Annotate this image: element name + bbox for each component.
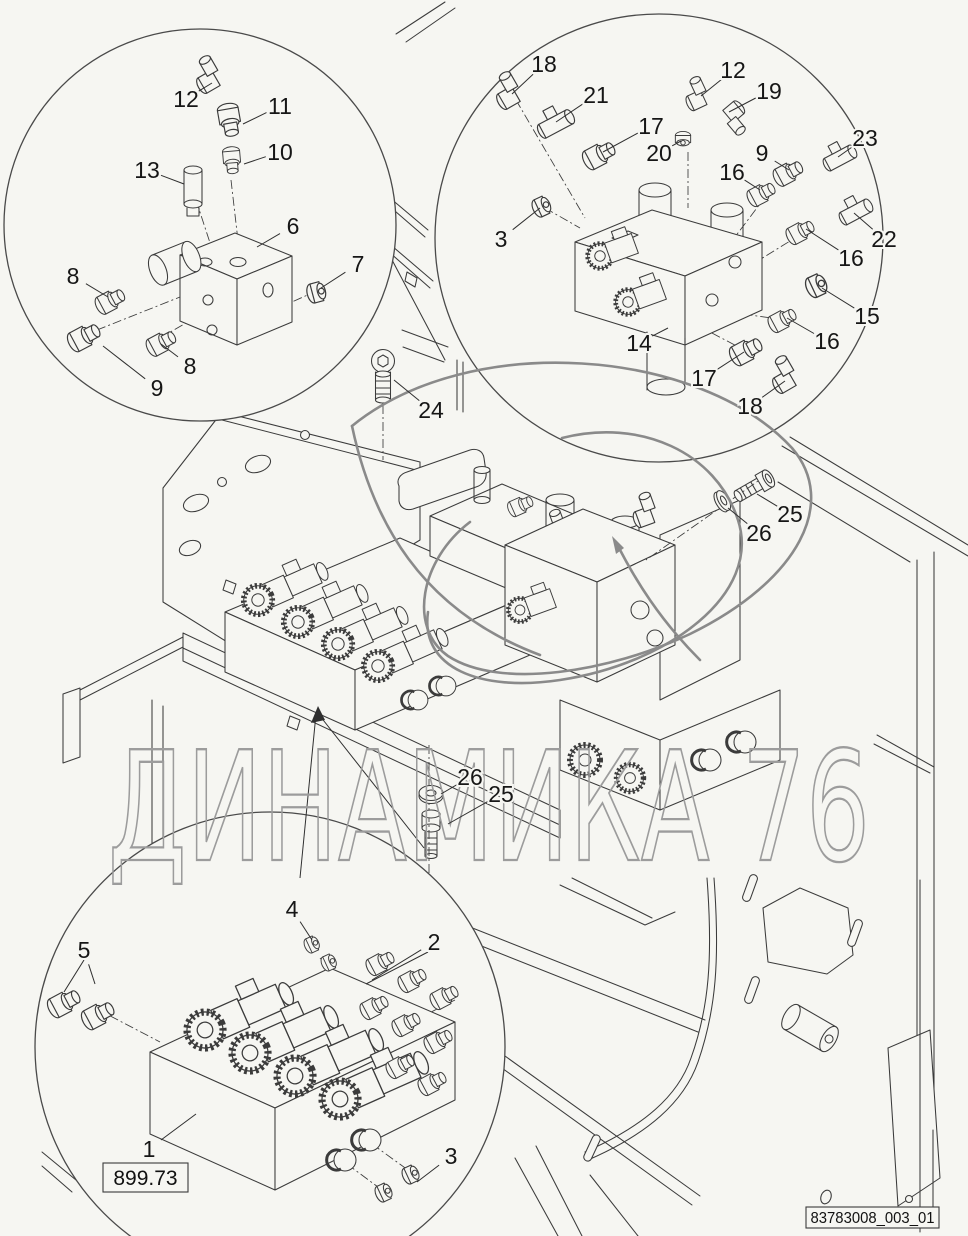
callout-17-11: 17	[638, 113, 664, 139]
reference-box: 899.73	[103, 1163, 188, 1192]
callout-11-1: 11	[268, 93, 292, 119]
callout-16-22: 16	[814, 328, 840, 354]
callout-26-28: 26	[746, 520, 772, 546]
callout-6-4: 6	[287, 213, 300, 239]
callout-1-34: 1	[143, 1136, 156, 1162]
callout-12-0: 12	[173, 86, 199, 112]
callout-10-2: 10	[267, 139, 293, 165]
callout-25-27: 25	[777, 501, 803, 527]
parts-diagram: ДИНАМИКА 76 1211101367889182117121920923…	[0, 0, 968, 1236]
bolt-24	[372, 350, 395, 404]
watermark-text: ДИНАМИКА 76	[108, 719, 870, 896]
document-id: 83783008_003_01	[811, 1210, 935, 1227]
callout-17-24: 17	[691, 365, 717, 391]
reference-number: 899.73	[113, 1167, 177, 1190]
callout-13-3: 13	[134, 157, 160, 183]
callout-9-15: 9	[756, 140, 769, 166]
callout-26-29: 26	[457, 764, 483, 790]
callout-20-14: 20	[646, 140, 672, 166]
callout-8-6: 8	[67, 263, 80, 289]
callout-22-18: 22	[871, 226, 897, 252]
detail-circle-top-left	[4, 29, 396, 421]
callout-16-20: 16	[838, 245, 864, 271]
callout-9-8: 9	[151, 375, 164, 401]
callout-leader-25-27	[757, 494, 777, 506]
callout-15-21: 15	[854, 303, 880, 329]
callout-3-19: 3	[495, 226, 508, 252]
callout-7-5: 7	[352, 251, 365, 277]
callout-19-13: 19	[756, 78, 782, 104]
callout-16-17: 16	[719, 159, 745, 185]
frame-roller	[778, 1001, 842, 1054]
bolt-25	[731, 468, 777, 506]
callout-5-31: 5	[78, 937, 91, 963]
callout-25-30: 25	[488, 781, 514, 807]
callout-14-23: 14	[626, 330, 652, 356]
callout-23-16: 23	[852, 125, 878, 151]
document-id-box: 83783008_003_01	[806, 1207, 939, 1228]
exploded-parts-diagram-page: ДИНАМИКА 76 1211101367889182117121920923…	[0, 0, 968, 1236]
callout-24-26: 24	[418, 397, 444, 423]
callout-2-33: 2	[428, 929, 441, 955]
callout-8-7: 8	[184, 353, 197, 379]
callout-4-32: 4	[286, 896, 299, 922]
callout-21-10: 21	[583, 82, 609, 108]
callout-12-12: 12	[720, 57, 746, 83]
callout-18-9: 18	[531, 51, 557, 77]
callout-3-35: 3	[445, 1143, 458, 1169]
callout-18-25: 18	[737, 393, 763, 419]
part-20-fitting	[675, 131, 690, 145]
